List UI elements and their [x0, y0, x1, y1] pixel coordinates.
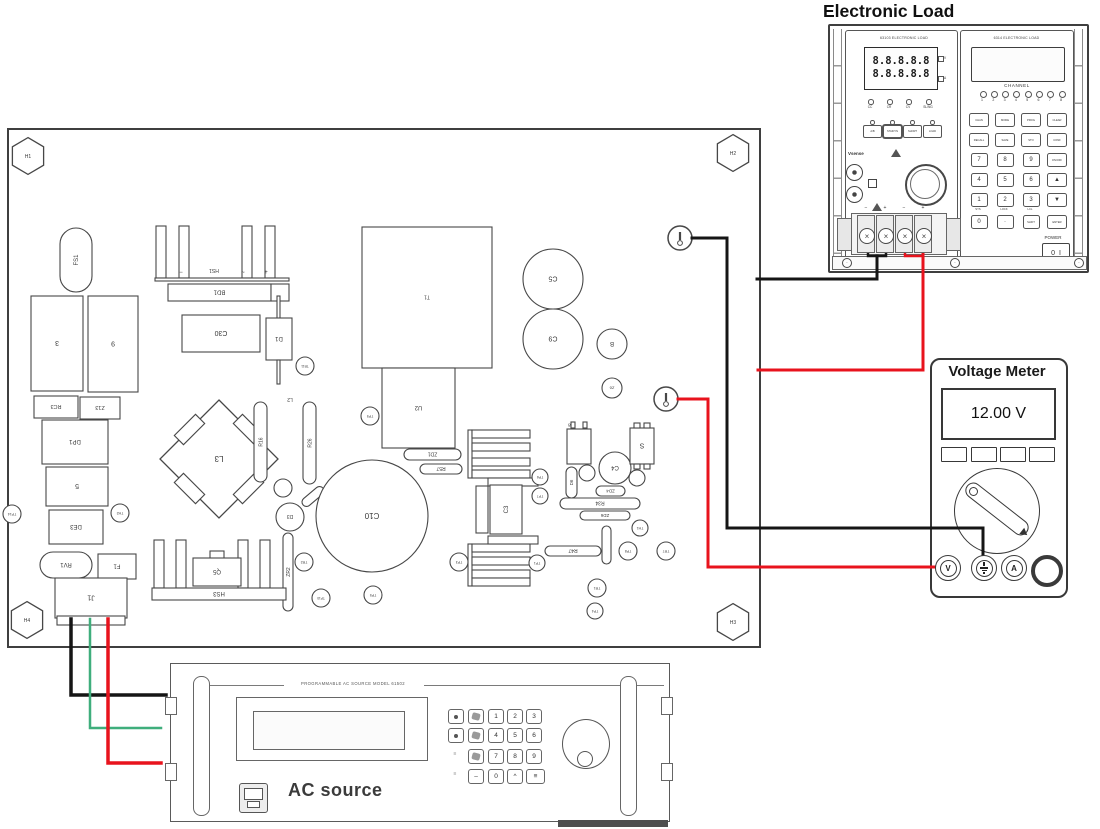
load-key-shift[interactable]: SHIFT [1023, 215, 1040, 229]
meter-dial-dot [969, 487, 978, 496]
load-key-1[interactable]: 1 [971, 193, 988, 207]
testpoint-pin-dot [664, 402, 669, 407]
pcb-component-rect [583, 422, 587, 428]
pcb-label-BD1: BD1 [213, 288, 225, 294]
pcb-label-HS1: HS1 [209, 267, 219, 273]
load-mode-led [930, 120, 935, 125]
pcb-label-R34: R34 [595, 500, 604, 506]
load-channel-led [1059, 91, 1066, 98]
pcb-component-rect [277, 360, 280, 384]
pcb-label-ZD4: ZD4 [606, 488, 615, 493]
ac-key-knob[interactable] [448, 728, 464, 743]
meter-function-button[interactable] [971, 447, 997, 462]
load-channel-number: 2 [989, 98, 997, 102]
pcb-component-rect [644, 464, 650, 469]
pcb-heatsink-fin [472, 578, 530, 586]
ac-rack-handle-left [193, 676, 210, 816]
pcb-heatsink-fin [472, 458, 530, 466]
pcb-label-C9: C9 [548, 335, 557, 342]
pcb-label-+: + [264, 270, 268, 276]
load-rack-rail-right [1074, 29, 1083, 265]
pcb-label-ZD6: ZD6 [600, 513, 609, 518]
ac-key-6[interactable]: 6 [526, 728, 542, 743]
load-key-chan[interactable]: CHAN [969, 113, 989, 127]
load-terminal-screw[interactable]: × [897, 228, 913, 244]
pcb-heatsink-fin [472, 570, 530, 578]
pcb-label-5: 5 [75, 482, 79, 489]
ac-output-connector-detail [244, 788, 263, 800]
load-channel-number: 7 [1046, 98, 1054, 102]
load-key-clear[interactable]: CLEAR [1047, 113, 1067, 127]
load-lcd-screen [971, 47, 1065, 82]
ac-key-caret[interactable]: ^ [507, 769, 523, 784]
load-key-enter[interactable]: ENTER [1047, 215, 1067, 229]
load-terminal-bracket-right [946, 218, 961, 251]
load-mode-button-short[interactable]: SHORT [903, 125, 922, 138]
load-key-0[interactable]: 0 [971, 215, 988, 229]
testpoint-pin-dot [678, 241, 683, 246]
pcb-label-FS1: FS1 [74, 254, 80, 266]
load-key-sto[interactable]: STO [1021, 133, 1041, 147]
load-key-conf[interactable]: CONF [1047, 133, 1067, 147]
load-channel-led [1025, 91, 1032, 98]
pcb-label-Z6: Z6 [609, 386, 614, 391]
load-power-label: POWER [1038, 235, 1068, 240]
pcb-label-U2: U2 [414, 404, 422, 410]
ac-key-8[interactable]: 8 [507, 749, 523, 764]
pcb-label-F1: F1 [113, 562, 121, 568]
load-seven-segment-display: 8.8.8.8.8 8.8.8.8.8 [864, 47, 938, 90]
ac-key-fill[interactable] [468, 749, 484, 764]
ac-rotary-knob-inner [577, 751, 593, 767]
pcb-label-B: B [610, 340, 614, 346]
pcb-label-TP14: TP14 [8, 512, 16, 516]
pcb-label-TR1: TR1 [594, 586, 601, 590]
ac-mounting-notch [165, 697, 177, 715]
load-display-unit: A [944, 76, 946, 80]
pcb-heatsink-fin [472, 470, 530, 478]
pcb-label-3: 3 [55, 339, 59, 346]
load-rail-screw: · [842, 258, 852, 268]
load-mode-button-stadyn[interactable]: STA/DYN [883, 125, 902, 138]
load-rail-screw: · [950, 258, 960, 268]
ac-output-connector-detail [247, 801, 260, 808]
ac-key-2[interactable]: 2 [507, 709, 523, 724]
pcb-label-TP8: TP8 [625, 549, 631, 553]
load-module-title: 63103 ELECTRONIC LOAD [858, 36, 950, 40]
load-indicator-label: CV [899, 105, 917, 109]
pcb-heatsink-spine [468, 544, 472, 586]
meter-jack-ground[interactable] [971, 555, 997, 581]
pcb-component-rect [476, 486, 488, 533]
ac-knob-button-dot [454, 734, 458, 738]
load-vsense-jack-plus [846, 164, 863, 181]
load-key-5[interactable]: 5 [997, 173, 1014, 187]
load-channel-led [991, 91, 998, 98]
pcb-label-TP9: TP9 [367, 414, 373, 418]
pcb-label-L3: L3 [214, 454, 223, 463]
voltage-meter-display: 12.00 V [941, 388, 1056, 440]
pcb-label-S: S [639, 442, 644, 449]
load-mode-button-ab[interactable]: A/B [863, 125, 882, 138]
meter-function-button[interactable] [1000, 447, 1026, 462]
ac-panel-mark: ≡ [448, 771, 462, 777]
load-key-[interactable]: ▼ [1047, 193, 1067, 207]
jack-glyph: A [1006, 560, 1023, 577]
pcb-label-TP7: TP7 [537, 494, 543, 498]
pcb-label-DP1: DP1 [69, 438, 81, 444]
pcb-label-H1: H1 [25, 154, 32, 160]
ac-knob-button-dot [454, 715, 458, 719]
ac-key-7[interactable]: 7 [488, 749, 504, 764]
pcb-heatsink-fin [472, 557, 530, 565]
ac-source-model-text: PROGRAMMABLE AC SOURCE MODEL 61502 [282, 681, 424, 686]
ac-key-knob[interactable] [448, 709, 464, 724]
load-mode-button-load[interactable]: LOAD [923, 125, 942, 138]
ac-key-icon[interactable] [468, 709, 484, 724]
ac-mounting-notch [165, 763, 177, 781]
ac-icon-button-glyph [471, 712, 481, 721]
load-terminal-mark: − [899, 205, 909, 211]
ac-rack-handle-right [620, 676, 637, 816]
pcb-label-RC3: RC3 [50, 403, 61, 409]
pcb-label-L2: L2 [287, 396, 293, 402]
pcb-component-pill [602, 526, 611, 564]
load-display-row-volts: 8.8.8.8.8 [873, 56, 930, 68]
load-key-sublabel: LOCK [996, 208, 1012, 211]
load-indicator-label: CR [880, 105, 898, 109]
pcb-label-TH2: TH2 [117, 511, 124, 515]
pcb-heatsink-fin [156, 226, 166, 278]
pcb-component-rect [644, 423, 650, 428]
load-channel-number: 3 [1001, 98, 1009, 102]
load-key-2[interactable]: 2 [997, 193, 1014, 207]
ac-key-5[interactable]: 5 [507, 728, 523, 743]
pcb-label-9: 9 [111, 340, 115, 347]
meter-function-button[interactable] [1029, 447, 1055, 462]
pcb-label-H2: H2 [730, 151, 737, 157]
meter-jack-a[interactable]: A [1001, 555, 1027, 581]
load-channel-number: 8 [1057, 98, 1065, 102]
pcb-label-TH1: TH1 [637, 526, 644, 530]
load-rail-screw: · [1074, 258, 1084, 268]
pcb-label-Z13: Z13 [95, 404, 104, 410]
ac-key-0[interactable]: 0 [488, 769, 504, 784]
load-key-6[interactable]: 6 [1023, 173, 1040, 187]
pcb-label-R57: R57 [436, 465, 445, 471]
load-channel-label: CHANNEL [983, 83, 1051, 88]
pcb-label-~: ~ [241, 270, 245, 276]
ac-icon-button-glyph [471, 731, 481, 740]
load-vsense-jack-minus [846, 186, 863, 203]
load-key-sublabel: SYS [970, 208, 986, 211]
load-key-prog[interactable]: PROG [1021, 113, 1041, 127]
ac-key-4[interactable]: 4 [488, 728, 504, 743]
meter-jack-blank[interactable] [1031, 555, 1063, 587]
load-indicator-led [868, 99, 874, 105]
ac-key-1[interactable]: 1 [488, 709, 504, 724]
meter-function-button[interactable] [941, 447, 967, 462]
pcb-label-TP6: TP6 [537, 475, 543, 479]
ac-key-9[interactable]: 9 [526, 749, 542, 764]
pcb-heatsink-fin [472, 430, 530, 438]
load-key-save[interactable]: SAVE [995, 133, 1015, 147]
load-channel-number: 6 [1035, 98, 1043, 102]
voltage-reading: 12.00 V [971, 405, 1026, 423]
pcb-component-rect [155, 278, 289, 281]
pcb-component-rect [567, 429, 591, 464]
pcb-label-R26: R26 [307, 438, 313, 447]
pcb-label-DE3: DE3 [70, 523, 82, 529]
load-terminal-mark: + [918, 205, 928, 211]
ground-icon [976, 560, 993, 577]
ac-lcd-screen [253, 711, 405, 750]
pcb-component-circle [579, 465, 595, 481]
electronic-load-title: Electronic Load [823, 1, 954, 22]
ac-key-wide[interactable]: ≡ [526, 769, 545, 784]
ac-key-dash[interactable]: – [468, 769, 484, 784]
pcb-label-R47: R47 [568, 547, 577, 553]
load-key-recall[interactable]: RECALL [969, 133, 989, 147]
load-indicator-led [887, 99, 893, 105]
ac-key-icon[interactable] [468, 728, 484, 743]
pcb-label-TP10: TP10 [317, 596, 325, 600]
load-vsense-label: Vsense [848, 151, 864, 156]
pcb-component-rect [634, 464, 640, 469]
pcb-label-HS3: HS3 [213, 590, 225, 596]
load-display-row-amps: 8.8.8.8.8 [873, 69, 930, 81]
load-key-[interactable]: · [997, 215, 1014, 229]
pcb-label-TP5: TP5 [370, 593, 376, 597]
load-mode-led [870, 120, 875, 125]
ac-icon-button-glyph [471, 752, 481, 761]
pcb-component-rect [277, 296, 280, 320]
pcb-component-circle [629, 470, 645, 486]
pcb-label-TR2: TR2 [301, 560, 308, 564]
load-channel-number: 5 [1023, 98, 1031, 102]
pcb-label-J1: J1 [87, 594, 95, 601]
ac-mounting-notch [661, 763, 673, 781]
pcb-label-C5: C5 [548, 275, 557, 282]
pcb-label-H4: H4 [24, 618, 31, 624]
load-mainframe-title: 6314 ELECTRONIC LOAD [974, 36, 1059, 40]
pcb-label-R16: R16 [258, 437, 264, 446]
pcb-label-−: − [179, 270, 183, 276]
load-terminal-screw[interactable]: × [916, 228, 932, 244]
pcb-component-rect [488, 536, 538, 544]
pcb-component-rect [57, 616, 125, 625]
ac-panel-mark: ≡ [448, 751, 462, 757]
load-mode-led [890, 120, 895, 125]
load-key-3[interactable]: 3 [1023, 193, 1040, 207]
pcb-heatsink-fin [260, 540, 270, 588]
pcb-heatsink-spine [468, 430, 472, 478]
pcb-label-TP1: TP1 [534, 561, 540, 565]
pcb-label-C10: C10 [364, 511, 379, 520]
pcb-label-C30: C30 [214, 329, 227, 336]
load-terminal-mark: − [861, 205, 871, 211]
pcb-label-TP4: TP4 [592, 609, 598, 613]
load-indicator-label: SL/NG [919, 105, 937, 109]
pcb-heatsink-fin [472, 443, 530, 451]
ac-key-3[interactable]: 3 [526, 709, 542, 724]
warning-triangle-icon [891, 149, 901, 157]
load-terminal-screw[interactable]: × [859, 228, 875, 244]
pcb-label-D1: D1 [275, 335, 283, 341]
load-rotary-knob-inner [910, 169, 940, 199]
pcb-label-TR7: TR7 [663, 549, 670, 553]
load-indicator-led [906, 99, 912, 105]
load-channel-led [980, 91, 987, 98]
load-key-mode[interactable]: MODE [995, 113, 1015, 127]
load-indicator-label: CC [861, 105, 879, 109]
voltage-meter-title: Voltage Meter [934, 363, 1060, 380]
pcb-component-circle [274, 479, 292, 497]
load-key-9[interactable]: 9 [1023, 153, 1040, 167]
ac-source-label: AC source [288, 780, 383, 801]
load-key-7[interactable]: 7 [971, 153, 988, 167]
pcb-label-T1: T1 [424, 294, 430, 300]
pcb-label-D3: D3 [287, 513, 294, 519]
pcb-label-RV1: RV1 [60, 561, 72, 567]
ac-mounting-notch [661, 697, 673, 715]
pcb-heatsink-fin [176, 540, 186, 588]
pcb-label-D6: D6 [569, 479, 574, 485]
pcb-label-TR11: TR11 [301, 364, 309, 368]
load-terminal-screw[interactable]: × [878, 228, 894, 244]
load-key-4[interactable]: 4 [971, 173, 988, 187]
load-mode-led [910, 120, 915, 125]
test-setup-diagram: H1H2H3H4FS139RC3Z13DP15DE3TP14TH2RV1F1J1… [0, 0, 1100, 829]
load-channel-number: 1 [978, 98, 986, 102]
pcb-component-rect [634, 423, 640, 428]
load-key-8[interactable]: 8 [997, 153, 1014, 167]
load-key-sublabel: LCL [1022, 208, 1038, 211]
pcb-label-C4: C4 [611, 464, 619, 470]
load-display-unit: V [944, 56, 946, 60]
meter-jack-v[interactable]: V [935, 555, 961, 581]
pcb-label-H3: H3 [730, 620, 737, 626]
pcb-heatsink-fin [472, 544, 530, 552]
load-indicator-led [926, 99, 932, 105]
pcb-label-ZR2: ZR2 [286, 567, 292, 577]
pcb-heatsink-fin [154, 540, 164, 588]
load-key-onoff[interactable]: ON/OFF [1047, 153, 1067, 167]
load-terminal-mark: + [880, 205, 890, 211]
load-key-[interactable]: ▲ [1047, 173, 1067, 187]
load-channel-led [1036, 91, 1043, 98]
pcb-label-C3: C3 [504, 505, 510, 513]
jack-glyph: V [940, 560, 957, 577]
load-terminal-bracket-left [837, 218, 852, 251]
pcb-component-rect [571, 422, 575, 428]
load-symbol-square [868, 179, 877, 188]
pcb-label-Q5: Q5 [212, 568, 221, 574]
pcb-label-ZD1: ZD1 [428, 451, 438, 457]
pcb-label-TP3: TP3 [456, 560, 462, 564]
ac-source-shadow-bar [558, 820, 668, 827]
load-channel-number: 4 [1012, 98, 1020, 102]
